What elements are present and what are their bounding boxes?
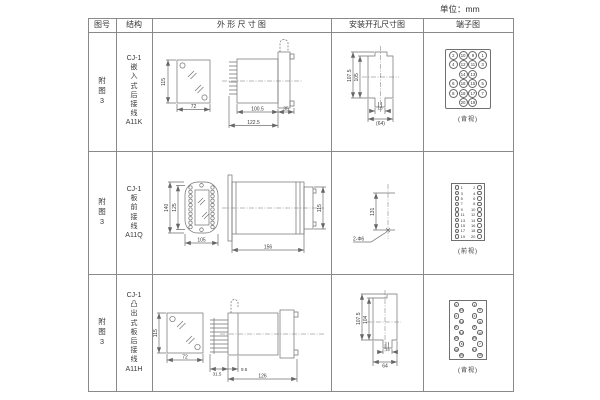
- terminal-caption-row1: (背视): [458, 114, 478, 123]
- terminal-number: 20: [471, 234, 475, 239]
- table-right-border: [513, 18, 514, 392]
- structure-row3: CJ-1 凸 出 式 板 后 接 线 A11H: [116, 291, 152, 374]
- terminal-circle: 9: [468, 51, 477, 60]
- outline-geometry-row2: [168, 175, 326, 253]
- terminal-circle: 5: [478, 79, 487, 88]
- terminal-circle: 14: [459, 70, 468, 79]
- col-header-struct: 结构: [116, 19, 152, 31]
- outline-drawing-row2: 140 125 105 115 156: [152, 151, 331, 274]
- terminal-cell-row1: 2 10 9 1 4 12 11 3 14 13 6 16 15 5 8: [423, 32, 513, 151]
- outline-geometry-row1: [166, 40, 302, 129]
- terminal-row: 4 12 11 3: [446, 60, 490, 69]
- dim-body-length: 100.5: [251, 107, 264, 113]
- terminal-cell-row2: 1 2 3 4 5 6 7 8 9 10: [423, 151, 513, 274]
- terminal-circle: 16: [459, 79, 468, 88]
- terminal-circle: 3: [478, 60, 487, 69]
- terminal-row: 19 20: [453, 234, 483, 239]
- mount-geometry-row1: [351, 46, 399, 122]
- dim-body-height: 115: [317, 204, 323, 212]
- terminal-circle: 20: [459, 98, 468, 107]
- terminal-circle: 2: [449, 51, 458, 60]
- terminal-circle: [477, 191, 482, 196]
- dim-mount-slot-w: 16: [377, 105, 383, 110]
- terminal-row: 8 18 17 7: [446, 89, 490, 98]
- dim-hole-spacing: 131: [370, 207, 376, 216]
- terminal-circle: [455, 223, 460, 228]
- dim-front-width: 72: [182, 354, 188, 360]
- terminal-row: 2 10 9 1: [446, 51, 490, 60]
- terminal-caption-row3: (背视): [458, 365, 478, 374]
- mount-drawing-row2: 131 2-Φ6: [331, 151, 423, 274]
- terminal-circle: [455, 185, 460, 190]
- terminal-circle: 10: [459, 51, 468, 60]
- terminal-diagram-row1: 2 10 9 1 4 12 11 3 14 13 6 16 15 5 8: [445, 49, 491, 109]
- dim-total-length: 122.5: [247, 120, 260, 126]
- terminal-circle: 17: [468, 89, 477, 98]
- terminal-circle: 18: [459, 89, 468, 98]
- outline-drawing-row3: 115 72 31.5 9.5 126: [152, 274, 331, 391]
- fig-no-row3: 附 图 3: [88, 317, 116, 347]
- terminal-circle: 4: [449, 60, 458, 69]
- terminal-circle: [477, 223, 482, 228]
- col-header-terminal: 端子图: [423, 19, 513, 31]
- col-header-fig: 图号: [88, 19, 116, 31]
- terminal-circle: [477, 196, 482, 201]
- terminal-stud: 20: [459, 353, 464, 358]
- structure-row2: CJ-1 板 前 接 线 A11Q: [116, 185, 152, 240]
- terminal-circle: [455, 229, 460, 234]
- terminal-circle: 13: [468, 70, 477, 79]
- dim-hole-note: 2-Φ6: [353, 237, 364, 243]
- terminal-circle: [477, 234, 482, 239]
- dim-mount-inner-h: 104: [363, 315, 369, 324]
- mount-geometry-row3: [361, 290, 401, 366]
- terminal-circle: 7: [478, 89, 487, 98]
- terminal-circle: 15: [468, 79, 477, 88]
- dim-front-width: 105: [197, 238, 206, 244]
- terminal-circle: [455, 196, 460, 201]
- dim-front-outer-h: 140: [164, 203, 170, 212]
- terminal-number: 19: [461, 234, 465, 239]
- unit-label: 单位：mm: [440, 3, 480, 15]
- dim-flange: 35: [283, 107, 289, 113]
- terminal-circle: [455, 191, 460, 196]
- dim-comb-length: 31.5: [213, 372, 222, 377]
- dim-mount-inner-h: 105: [354, 73, 360, 82]
- terminal-stud: 19: [477, 353, 482, 358]
- terminal-circle: [477, 207, 482, 212]
- mount-drawing-row3: 107.5 104 16 64: [331, 274, 423, 391]
- terminal-circle: 11: [468, 60, 477, 69]
- dim-body-length: 126: [258, 373, 267, 379]
- terminal-circle: [477, 185, 482, 190]
- terminal-circle: [477, 212, 482, 217]
- terminal-row: 6 16 15 5: [446, 79, 490, 88]
- terminal-circle: 6: [449, 79, 458, 88]
- terminal-circle: 19: [468, 98, 477, 107]
- terminal-diagram-row3: 2 1 10 9 4 3 12 11 6 5 14 13 16 15 8: [449, 300, 487, 360]
- terminal-circle: 1: [478, 51, 487, 60]
- dim-mount-outer-h: 107.5: [356, 312, 362, 325]
- mount-drawing-row1: 107.5 105 16 (64): [331, 32, 423, 151]
- terminal-circle: 12: [459, 60, 468, 69]
- terminal-row: 20 19: [446, 98, 490, 107]
- terminal-circle: [455, 207, 460, 212]
- terminal-diagram-row2: 1 2 3 4 5 6 7 8 9 10: [451, 183, 485, 241]
- structure-row1: CJ-1 嵌 入 式 后 接 线 A11K: [116, 54, 152, 128]
- terminal-circle: [477, 202, 482, 207]
- terminal-row: 20 19: [450, 352, 486, 358]
- col-header-outline: 外 形 尺 寸 图: [152, 19, 331, 31]
- fig-no-row2: 附 图 3: [88, 197, 116, 227]
- fig-no-row1: 附 图 3: [88, 76, 116, 106]
- dim-mount-slot-w: 16: [385, 347, 390, 352]
- terminal-circle: [455, 212, 460, 217]
- terminal-cell-row3: 2 1 10 9 4 3 12 11 6 5 14 13 16 15 8: [423, 274, 513, 391]
- terminal-circle: [455, 218, 460, 223]
- terminal-row: 14 13: [446, 70, 490, 79]
- dim-mount-overall-w: 64: [382, 364, 388, 370]
- terminal-circle: [477, 229, 482, 234]
- dim-front-inner-h: 125: [172, 203, 178, 212]
- terminal-circle: [455, 234, 460, 239]
- manual-page: 单位：mm 图号 结构 外 形 尺 寸 图 安装开孔尺寸图 端子图 附 图 3 …: [0, 0, 600, 400]
- dim-mount-outer-h: 107.5: [347, 69, 353, 82]
- dim-front-width: 72: [191, 104, 197, 110]
- col-header-mount: 安装开孔尺寸图: [331, 19, 423, 31]
- outline-drawing-row1: 115 72 100.5 122.5 35: [152, 32, 331, 151]
- terminal-circle: [477, 218, 482, 223]
- dim-offset: 9.5: [241, 367, 248, 372]
- terminal-circle: [455, 202, 460, 207]
- dim-front-height: 115: [161, 78, 167, 86]
- dim-body-length: 156: [264, 244, 273, 250]
- dim-mount-overall-w: (64): [376, 121, 385, 127]
- terminal-caption-row2: (前视): [458, 246, 478, 255]
- terminal-circle: 8: [449, 89, 458, 98]
- dim-front-height: 115: [153, 329, 159, 337]
